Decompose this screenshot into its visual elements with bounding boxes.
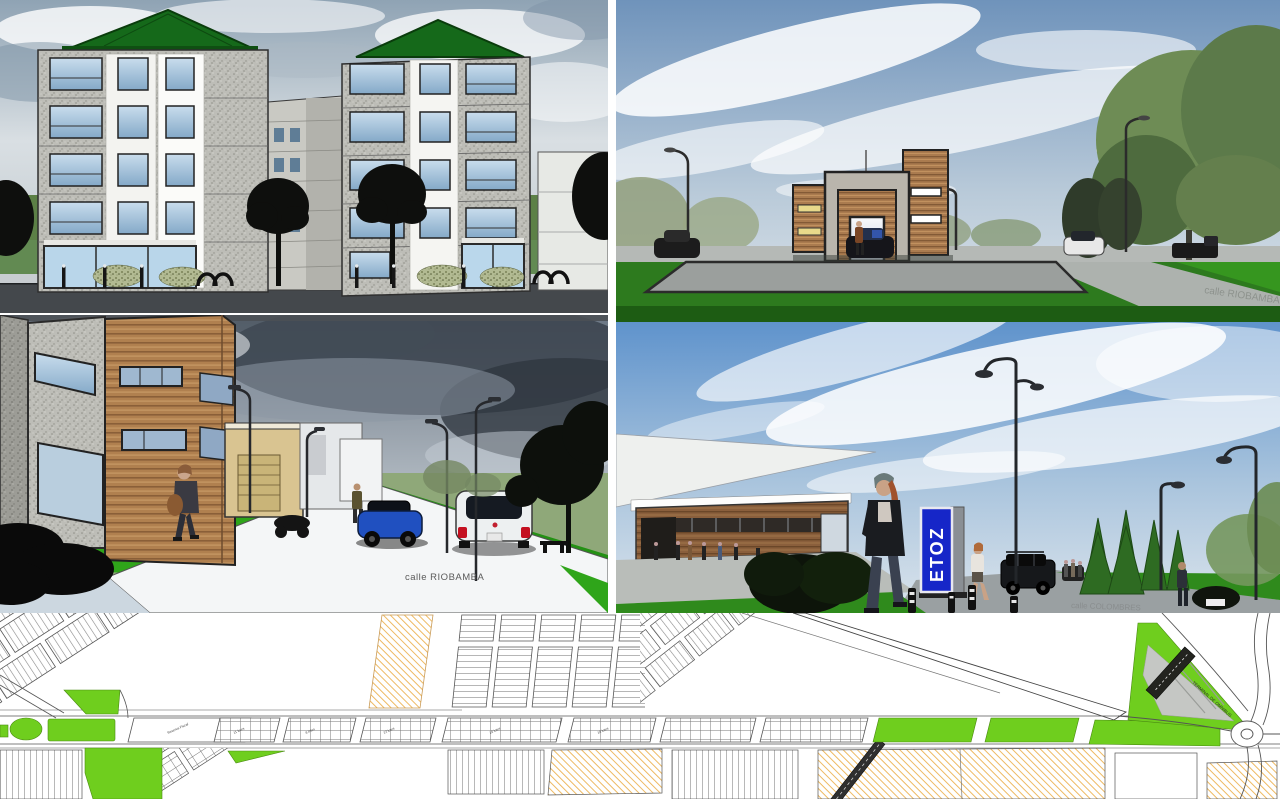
green-parcel	[48, 719, 115, 741]
green-avenue-parcel	[985, 718, 1079, 742]
plaza	[646, 262, 1086, 292]
green-avenue-parcel	[873, 718, 977, 742]
street-label: calle RIOBAMBA	[405, 572, 484, 583]
render-collage: calle RIOBAMBA	[0, 0, 1280, 799]
lawn-dark-band	[616, 306, 1280, 322]
sign-text: ETOZ	[927, 526, 947, 582]
render-apartment-buildings	[0, 0, 608, 313]
people-group	[1064, 559, 1082, 577]
green-parcel	[0, 725, 8, 737]
hatched-parcel	[548, 749, 662, 795]
apartment-building-left	[38, 10, 268, 292]
strip-blocks	[452, 615, 656, 707]
green-oval	[10, 718, 42, 740]
wood-building	[105, 315, 235, 565]
granite-building	[28, 317, 105, 548]
render-street-view: calle RIOBAMBA	[0, 315, 608, 613]
render-terminal-front: ETOZ	[616, 322, 1280, 613]
master-plan-map: Reserva Fiscal 11 lotes 8 lotes 22 lotes…	[0, 613, 1280, 799]
tan-building	[225, 423, 303, 517]
green-parcel-large	[85, 748, 162, 799]
render-terminal-access: calle RIOBAMBA	[616, 0, 1280, 322]
etoz-sign: ETOZ	[919, 507, 967, 598]
